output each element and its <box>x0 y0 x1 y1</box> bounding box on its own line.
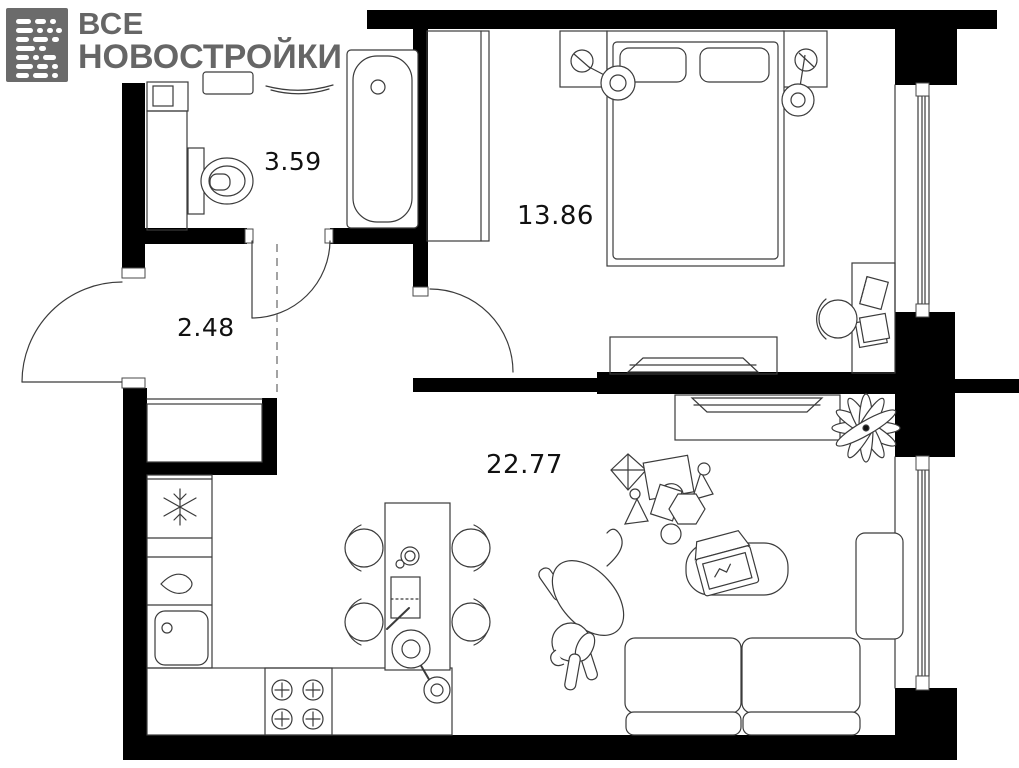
tv-console-bedroom-icon <box>610 337 777 374</box>
pendant-lamp-right-icon <box>782 49 817 116</box>
closet-icon <box>147 399 262 462</box>
kitchen-sink-icon <box>155 611 208 665</box>
dog-icon <box>537 529 638 690</box>
tv-console-living-icon <box>675 395 840 440</box>
logo: ВСЕ НОВОСТРОЙКИ <box>6 8 342 82</box>
chair-icon <box>345 525 383 571</box>
drain-icon <box>161 574 192 593</box>
room-label-bathroom: 3.59 <box>264 147 322 176</box>
bathroom-door-arc <box>252 241 330 318</box>
logo-line1: ВСЕ <box>78 8 342 39</box>
chair-icon <box>452 525 490 571</box>
bedroom-window-icon <box>895 83 929 317</box>
door-jambs <box>122 229 428 388</box>
dining-set <box>345 503 490 703</box>
logo-text: ВСЕ НОВОСТРОЙКИ <box>78 8 342 73</box>
chair-icon <box>345 599 383 645</box>
desk-icon <box>852 263 895 373</box>
pillow-icon <box>700 48 769 82</box>
fridge-icon <box>164 489 196 525</box>
toilet-icon <box>188 148 253 214</box>
desk-chair-icon <box>817 299 857 339</box>
room-label-hallway: 2.48 <box>177 313 235 342</box>
chair-icon <box>452 599 490 645</box>
floor-plan-page: 3.59 2.48 13.86 22.77 ВСЕ НОВОСТРОЙКИ <box>0 0 1019 768</box>
toy-icons <box>611 454 713 544</box>
plant-icon <box>832 394 900 462</box>
room-label-living-kitchen: 22.77 <box>486 450 563 480</box>
entrance-door-arc <box>22 282 122 382</box>
washing-machine-icon <box>147 82 188 111</box>
logo-line2: НОВОСТРОЙКИ <box>78 41 342 73</box>
floor-plan <box>0 0 1019 768</box>
double-bed-icon <box>607 31 784 266</box>
bathtub-icon <box>347 50 418 228</box>
stove-icon <box>265 668 332 735</box>
room-label-bedroom: 13.86 <box>517 201 594 231</box>
wardrobe-icon <box>427 31 489 241</box>
bedroom-door-arc <box>430 289 513 372</box>
logo-mark-icon <box>6 8 68 82</box>
